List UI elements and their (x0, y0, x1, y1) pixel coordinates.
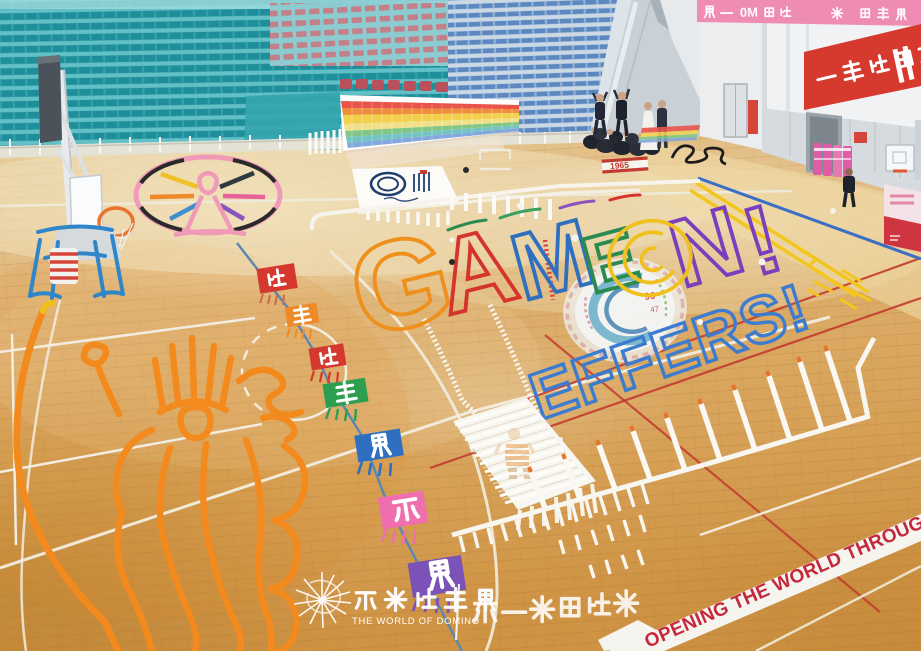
svg-text:THE WORLD OF DOMINO: THE WORLD OF DOMINO (352, 616, 480, 627)
svg-text:1965: 1965 (610, 160, 630, 171)
svg-text:0M: 0M (740, 4, 759, 20)
svg-text:47: 47 (650, 304, 661, 314)
